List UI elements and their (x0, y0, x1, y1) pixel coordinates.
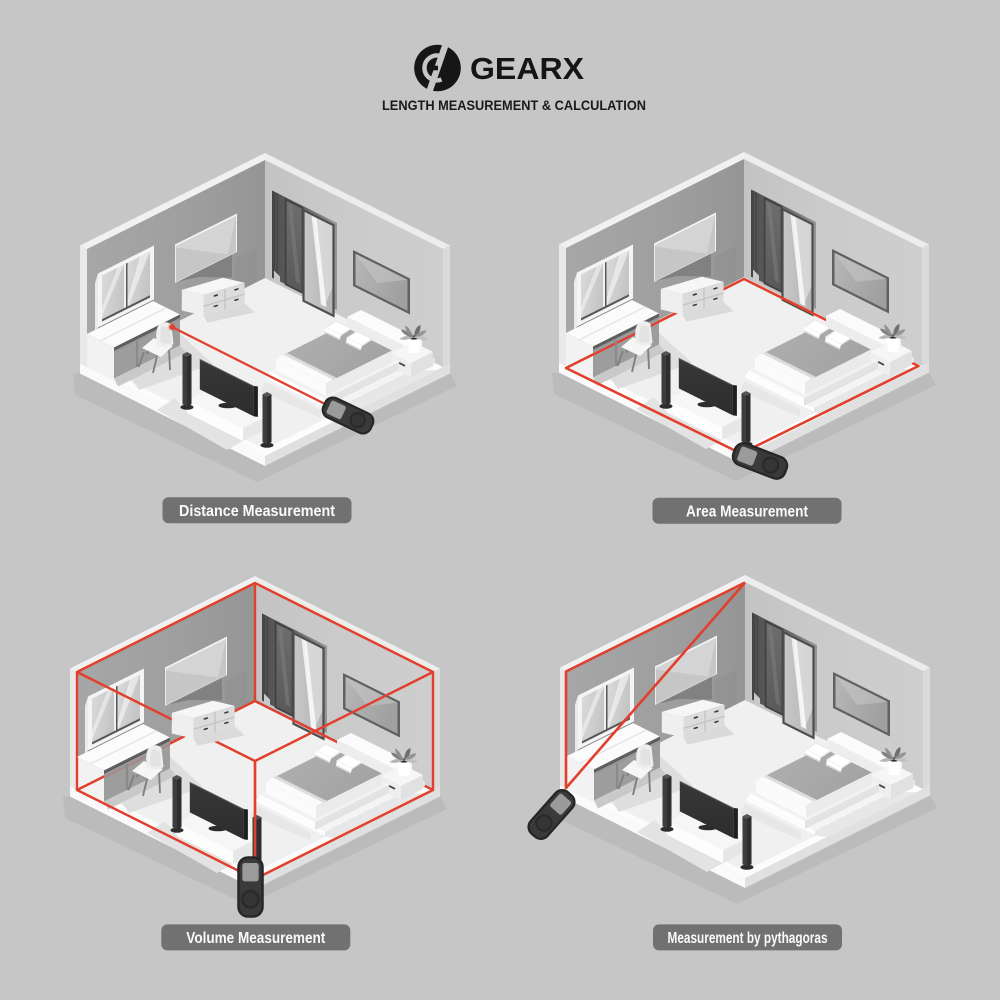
svg-text:GEARX: GEARX (470, 51, 584, 86)
svg-text:Measurement by pythagoras: Measurement by pythagoras (668, 930, 828, 947)
svg-text:Area Measurement: Area Measurement (686, 503, 809, 520)
svg-text:Volume Measurement: Volume Measurement (186, 930, 326, 947)
svg-text:LENGTH MEASUREMENT & CALCULATI: LENGTH MEASUREMENT & CALCULATION (382, 98, 646, 113)
svg-text:Distance Measurement: Distance Measurement (179, 503, 336, 520)
